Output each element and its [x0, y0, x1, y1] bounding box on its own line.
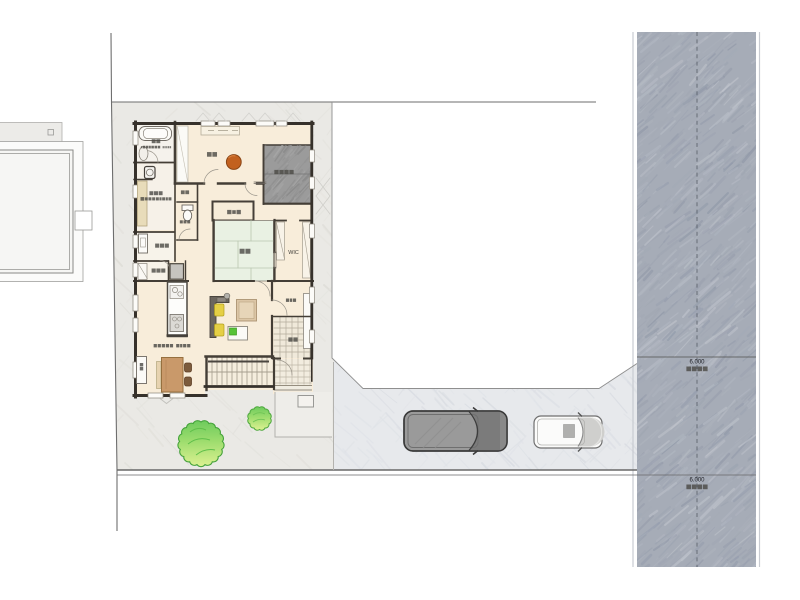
- svg-text:6.000: 6.000: [689, 478, 705, 484]
- svg-text:WIC: WIC: [288, 250, 299, 256]
- svg-text:6.000: 6.000: [689, 360, 705, 366]
